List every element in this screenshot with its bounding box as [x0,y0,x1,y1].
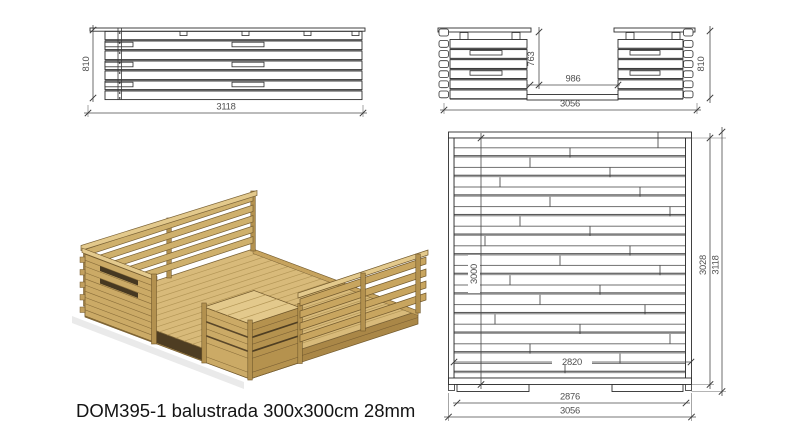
door-jamb-post [152,274,157,344]
entry-left-wall [438,28,531,100]
opening-width-label: 986 [565,73,580,84]
product-caption: DOM395-1 balustrada 300x300cm 28mm [76,400,415,422]
plan-view-drawing: 3000 2820 2876 3056 [440,125,794,437]
entry-height-label: 810 [695,56,706,71]
entry-height-dim: 810 [695,26,713,103]
opening-height-label: 763 [525,51,536,66]
front-corner-box [202,291,302,381]
plan-inner-height-label: 3028 [697,255,708,275]
front-view-wall [90,28,365,100]
front-view-height-dim: 810 [80,25,96,102]
entry-view-drawing: 763 986 810 3056 [430,12,794,126]
opening-height-dim: 763 [525,27,542,89]
iso-3d-render [50,146,440,406]
front-view-drawing: 810 3118 [80,12,372,126]
front-width-label: 3118 [216,101,235,112]
plan-board-span-label: 2820 [562,356,582,367]
plan-deck-depth-label: 3000 [468,264,479,284]
plan-height-label: 3118 [710,255,721,274]
front-view-width-dim: 3118 [84,101,367,118]
entry-right-wall [614,28,695,100]
opening-width-dim: 986 [527,73,621,89]
right-log-ends [684,29,694,98]
left-log-ends [439,29,449,98]
technical-drawing-sheet: 810 3118 [0,0,794,446]
plan-foot-right [612,385,683,392]
plan-feet-width-label: 2876 [560,391,580,402]
entry-width-label: 3056 [560,98,580,109]
plan-deck [449,132,692,392]
plan-width-label: 3056 [560,405,580,416]
plan-foot-left [457,385,529,392]
front-height-label: 810 [80,56,91,71]
